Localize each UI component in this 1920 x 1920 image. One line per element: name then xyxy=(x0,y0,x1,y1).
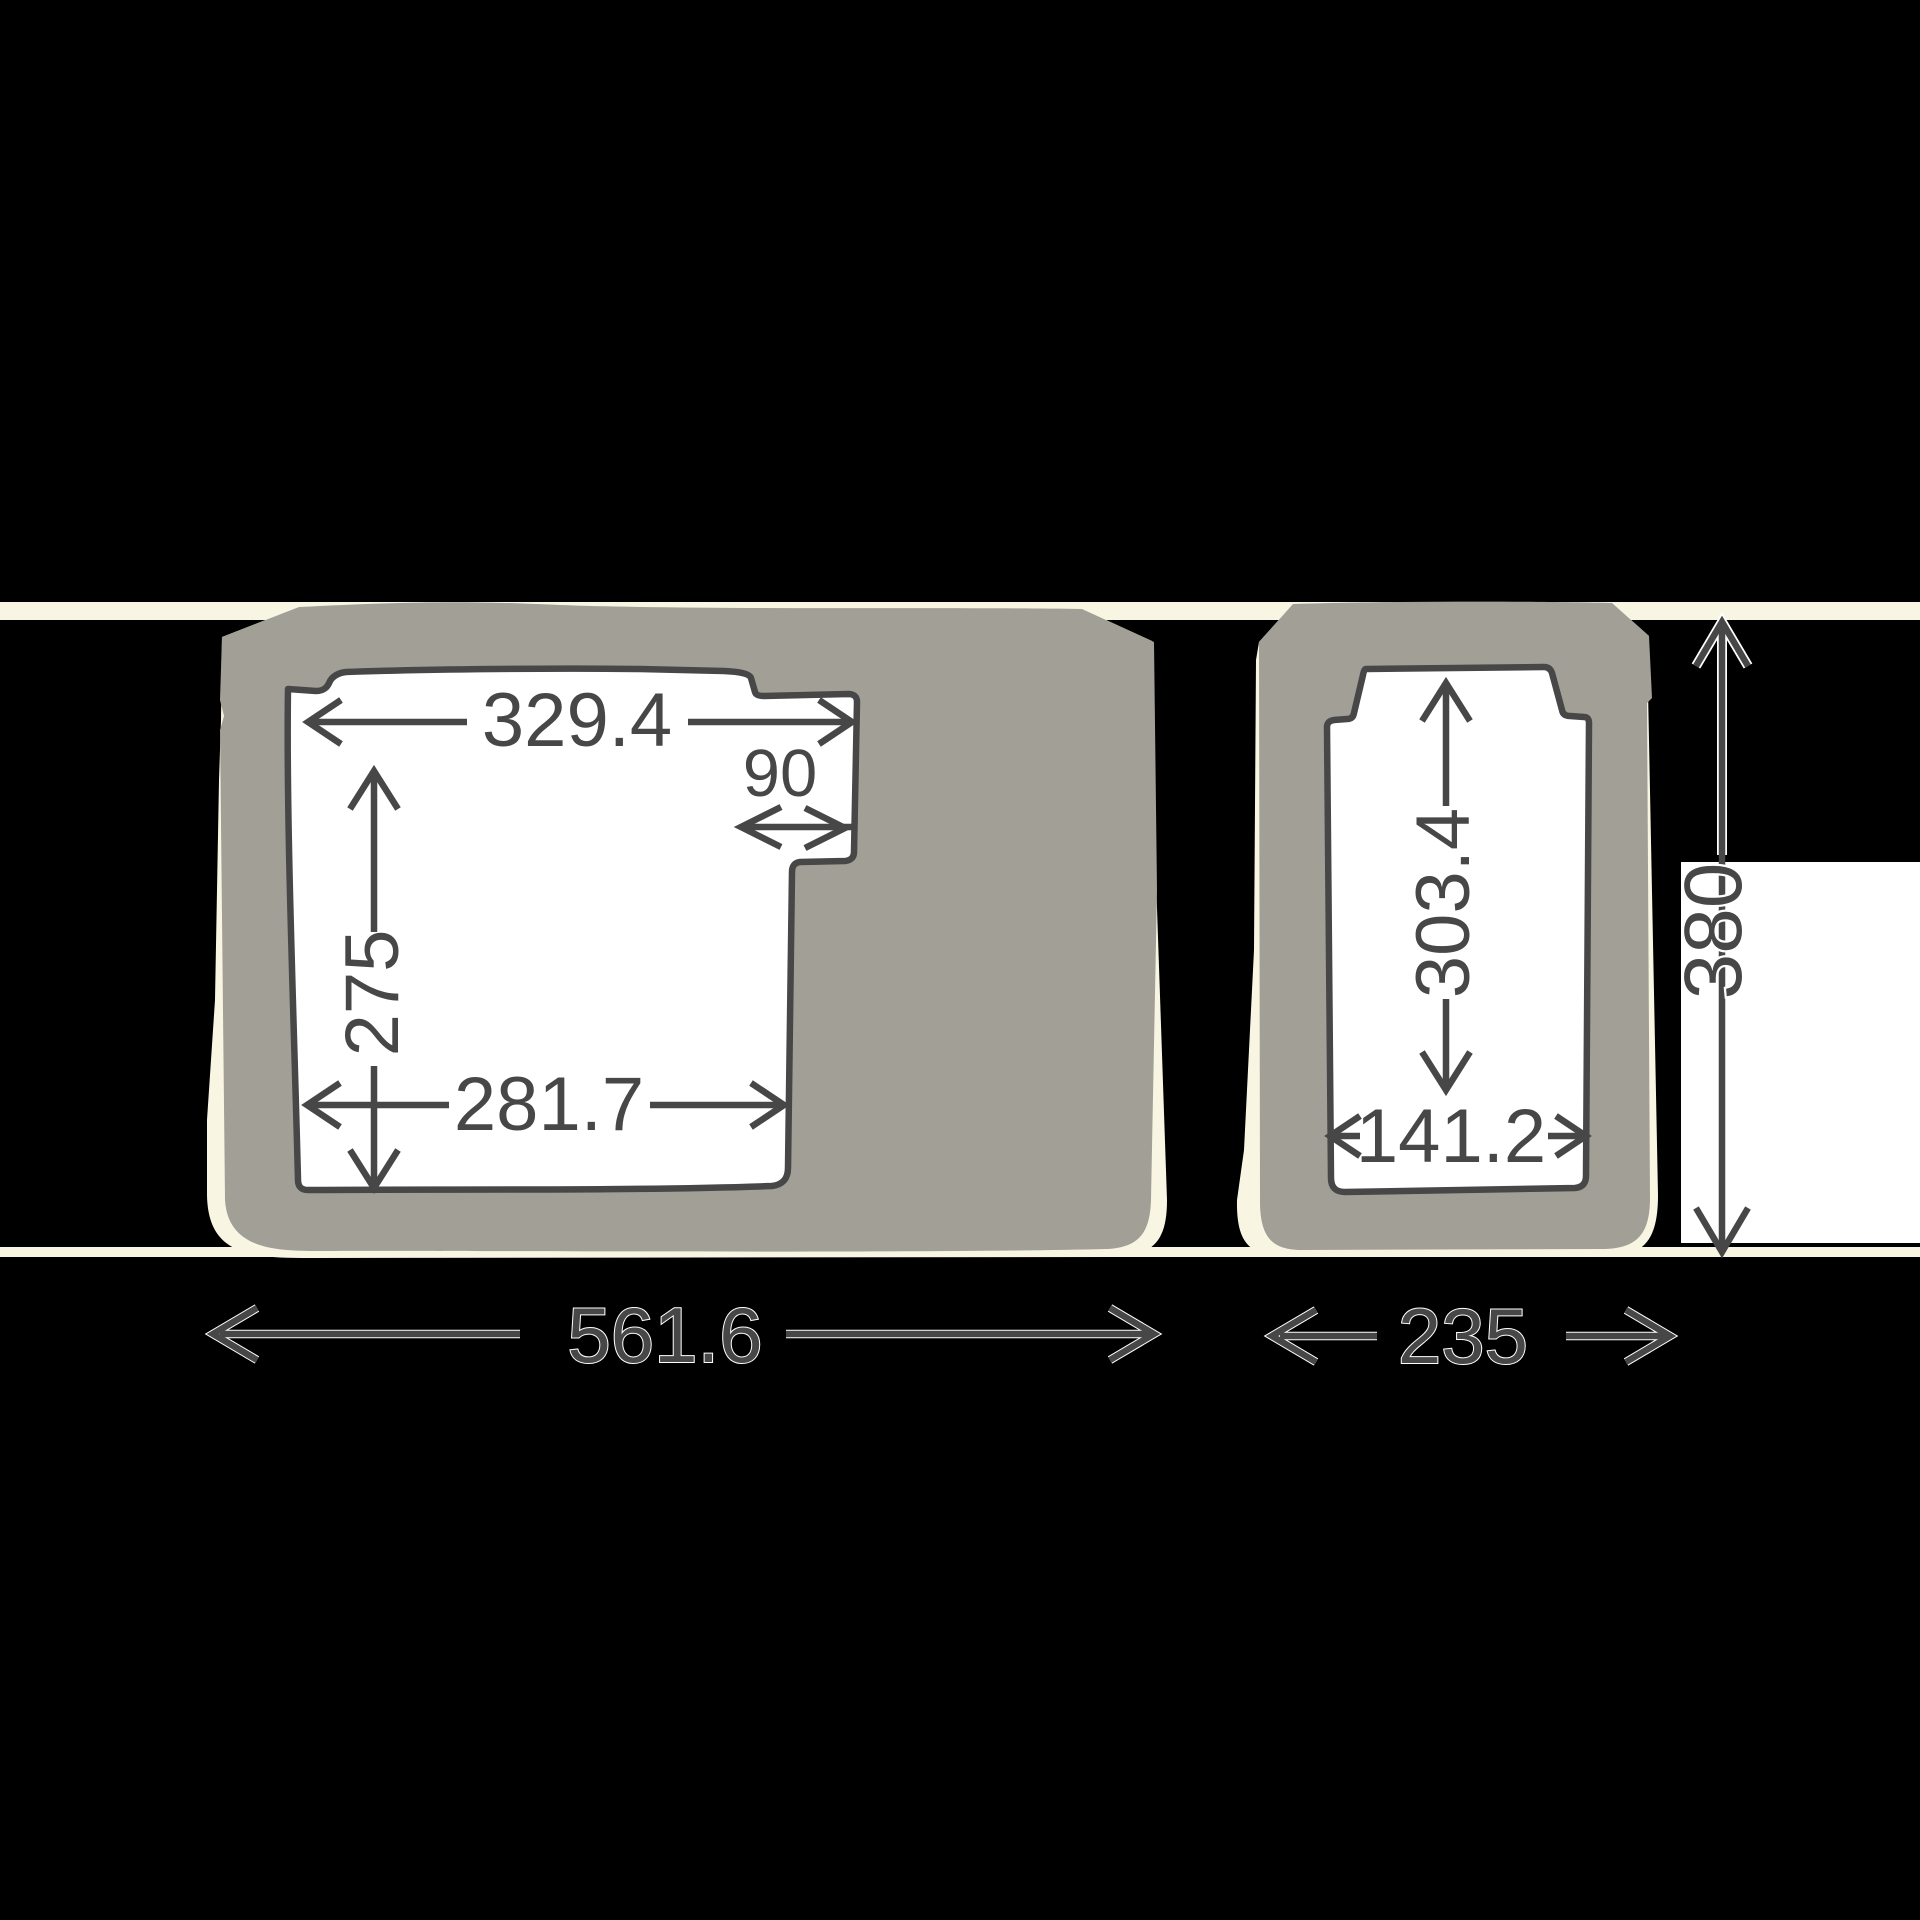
svg-text:275: 275 xyxy=(330,930,415,1057)
svg-text:235: 235 xyxy=(1398,1292,1528,1380)
svg-text:561.6: 561.6 xyxy=(567,1291,762,1379)
svg-text:329.4: 329.4 xyxy=(482,678,672,763)
svg-text:281.7: 281.7 xyxy=(454,1062,644,1147)
svg-text:141.2: 141.2 xyxy=(1356,1094,1546,1179)
svg-text:90: 90 xyxy=(743,736,818,811)
svg-text:303.4: 303.4 xyxy=(1401,808,1486,998)
svg-text:380: 380 xyxy=(1668,863,1759,1000)
